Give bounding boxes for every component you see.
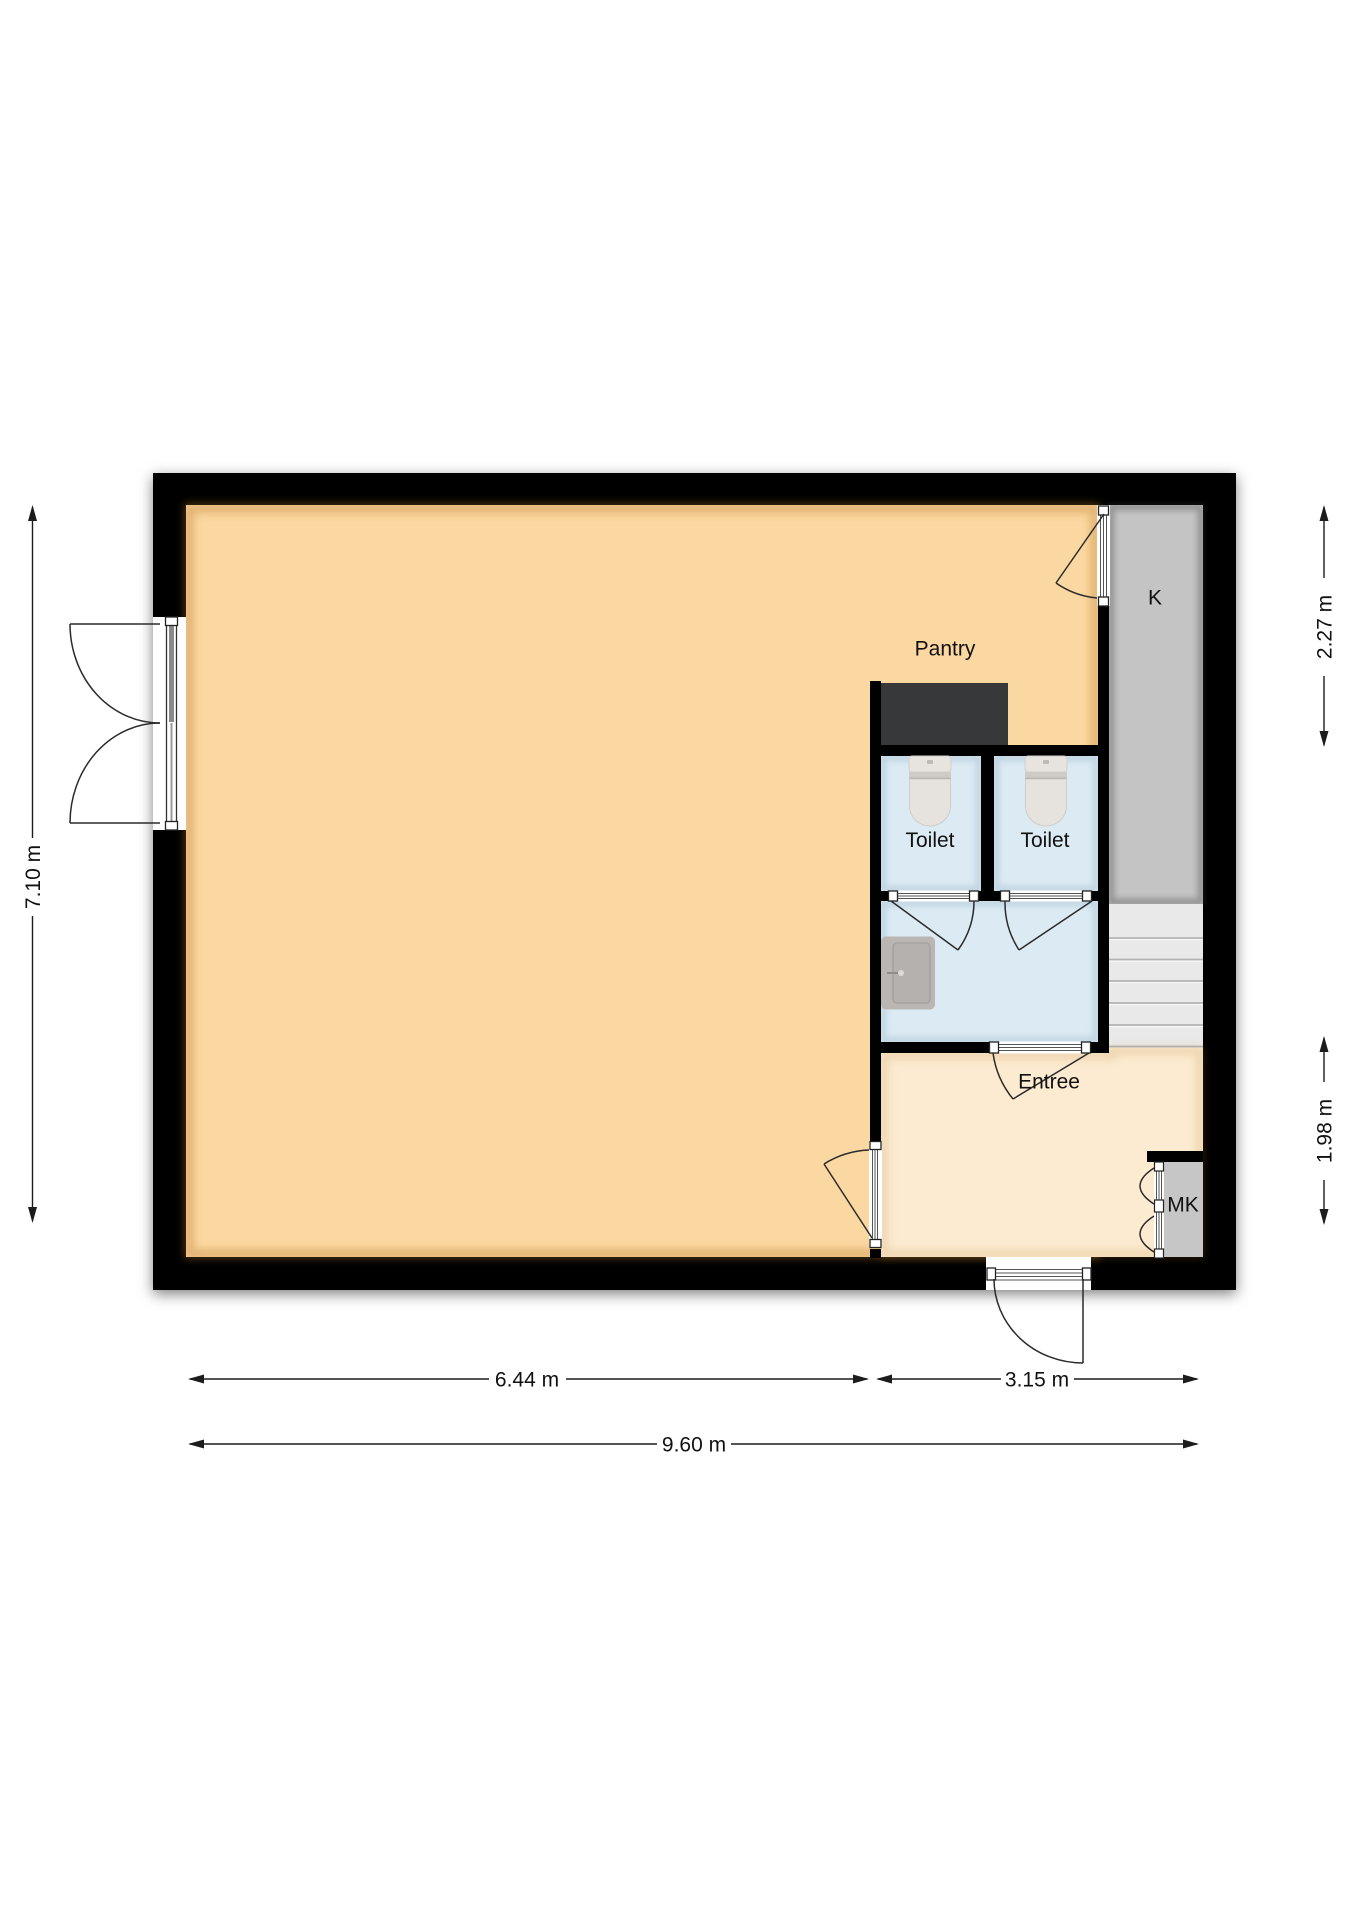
svg-text:K: K — [1148, 587, 1162, 610]
svg-text:7.10 m: 7.10 m — [22, 845, 45, 909]
svg-text:Entree: Entree — [1018, 1071, 1080, 1094]
svg-text:9.60 m: 9.60 m — [662, 1434, 726, 1457]
svg-text:MK: MK — [1167, 1194, 1199, 1217]
svg-text:6.44 m: 6.44 m — [495, 1369, 559, 1392]
svg-text:1.98 m: 1.98 m — [1314, 1099, 1337, 1163]
svg-text:2.27 m: 2.27 m — [1314, 595, 1337, 659]
svg-text:Toilet: Toilet — [1020, 829, 1069, 852]
svg-text:Pantry: Pantry — [915, 638, 976, 661]
svg-text:3.15 m: 3.15 m — [1005, 1369, 1069, 1392]
svg-text:Toilet: Toilet — [905, 829, 954, 852]
